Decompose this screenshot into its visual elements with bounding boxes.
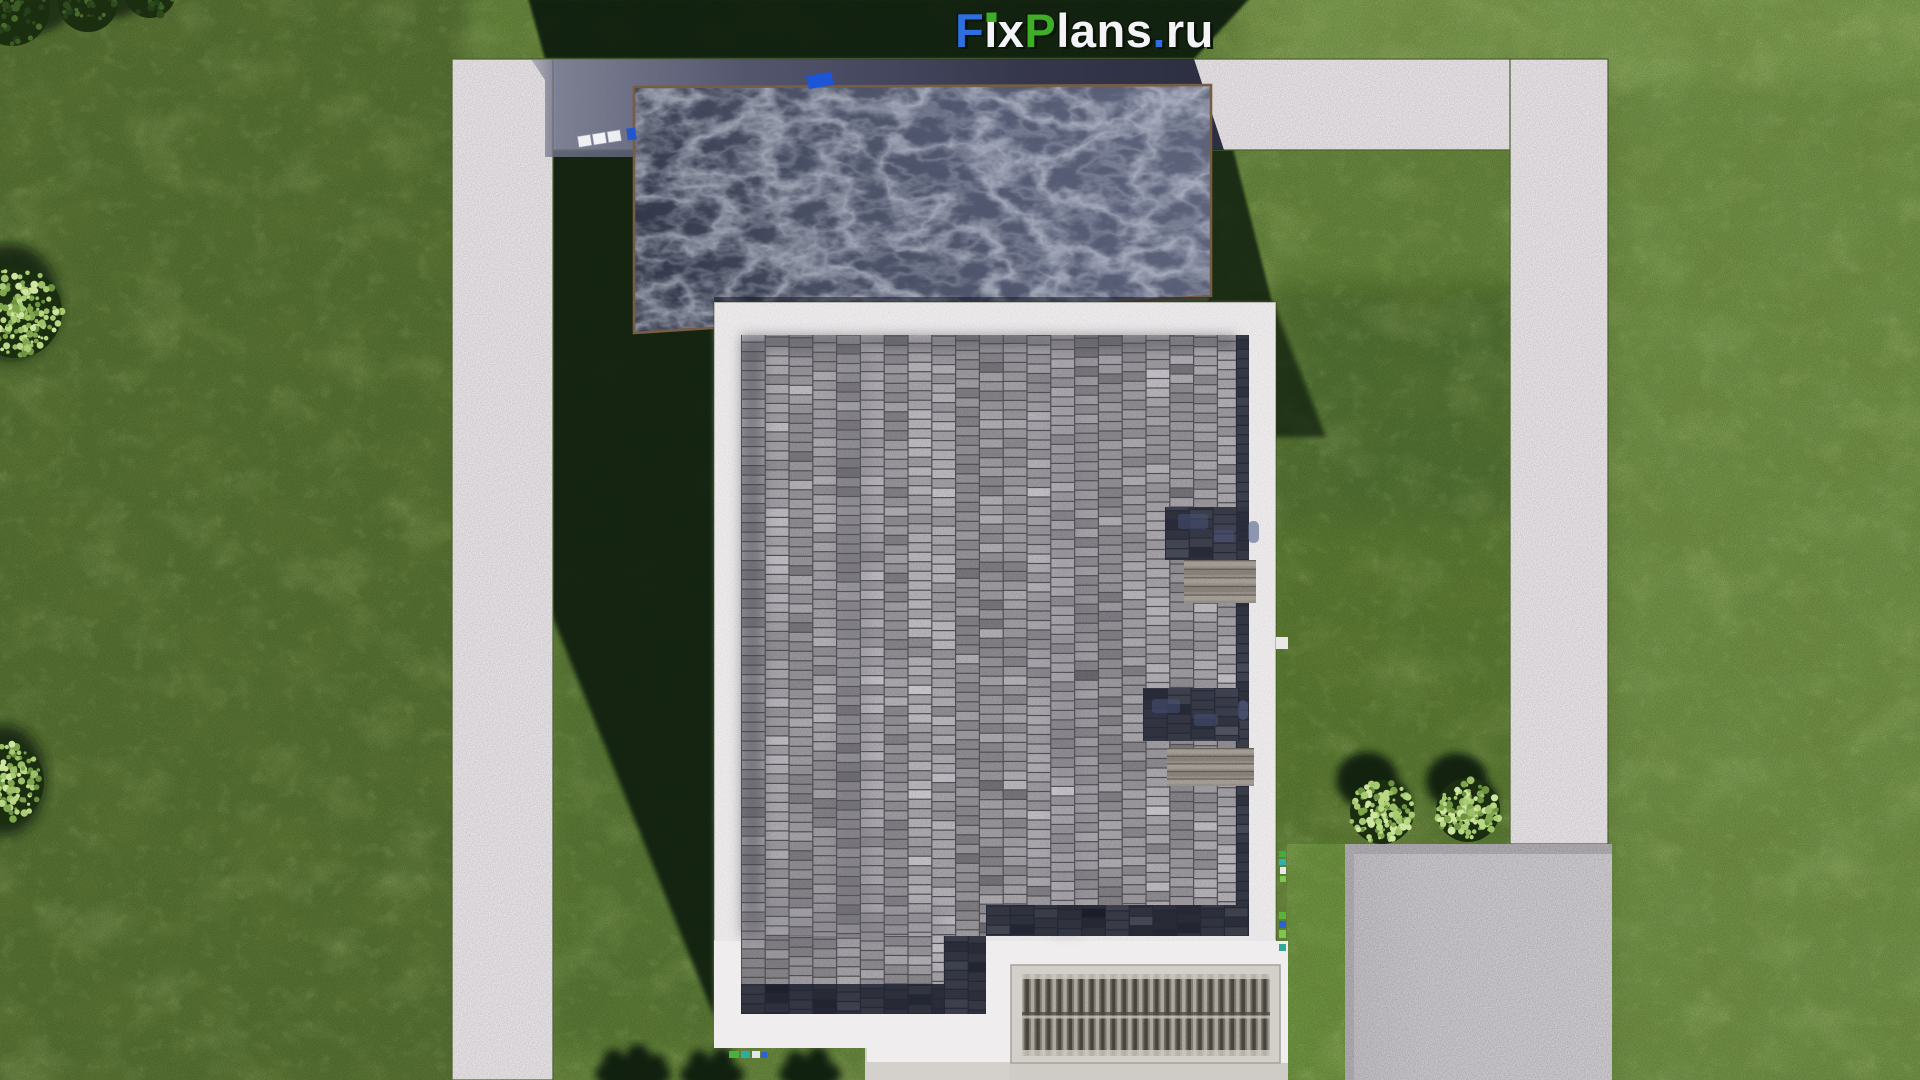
svg-text:FixPlans.ru: FixPlans.ru [955, 4, 1214, 57]
